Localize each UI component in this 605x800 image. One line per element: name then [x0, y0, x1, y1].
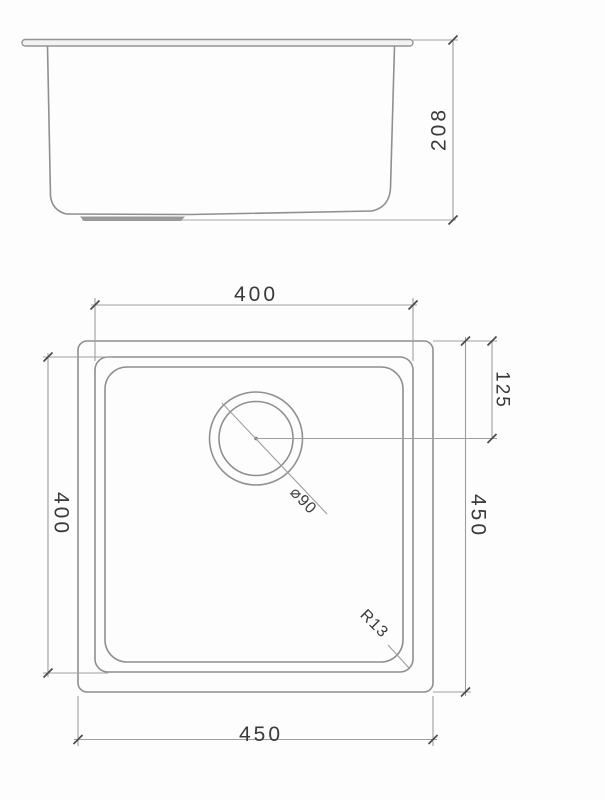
dimension-drain-offset-125: 125 — [256, 337, 513, 444]
side-elevation-view: 208 — [22, 36, 458, 225]
drain-diameter-label: ⌀90 — [286, 484, 319, 518]
dimension-top-width-400: 400 — [91, 283, 418, 361]
left-height-label: 400 — [50, 492, 73, 536]
dimension-corner-radius-r13: R13 — [357, 607, 409, 668]
dimension-height-208: 208 — [413, 36, 458, 225]
drawing-svg: 208 ⌀90 125 — [0, 0, 605, 800]
drain-pad — [80, 217, 185, 222]
bottom-width-label: 450 — [239, 723, 283, 746]
corner-radius-label: R13 — [357, 607, 392, 642]
right-height-label: 450 — [467, 494, 490, 538]
side-height-label: 208 — [428, 107, 451, 151]
basin-left-wall — [48, 46, 67, 214]
dimension-right-height-450: 450 — [433, 337, 490, 697]
plan-view: ⌀90 125 400 400 — [43, 283, 513, 746]
dimension-drain-diameter: ⌀90 — [222, 403, 327, 518]
basin-bottom — [66, 211, 372, 215]
basin-right-wall — [372, 46, 395, 211]
sink-technical-drawing: 208 ⌀90 125 — [0, 0, 605, 800]
drain-offset-label: 125 — [492, 371, 513, 409]
dimension-bottom-width-450: 450 — [74, 696, 438, 746]
sink-rim-flange — [22, 40, 413, 47]
top-width-label: 400 — [234, 283, 278, 306]
